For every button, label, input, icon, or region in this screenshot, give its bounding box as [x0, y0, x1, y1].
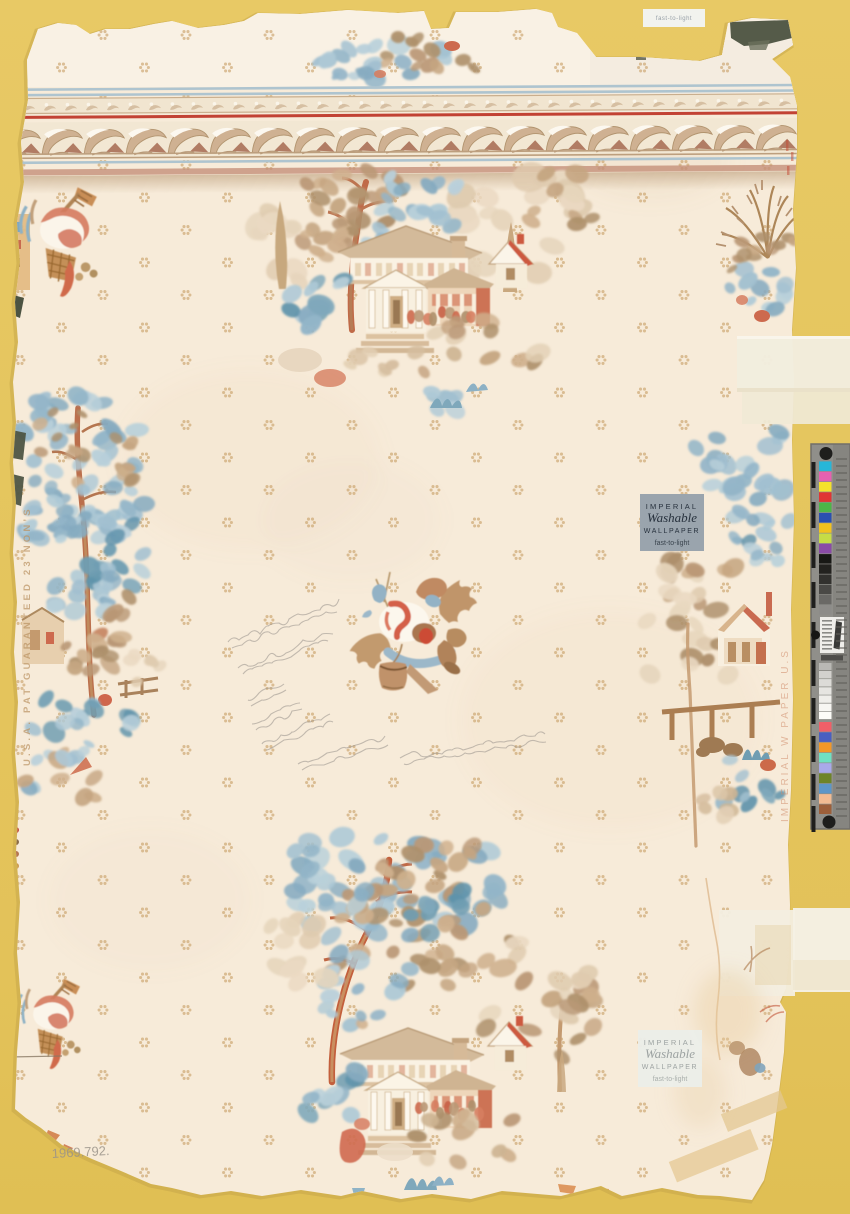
svg-text:WALLPAPER: WALLPAPER [644, 528, 700, 535]
svg-text:fast-to-light: fast-to-light [656, 16, 692, 22]
svg-text:fast-to-light: fast-to-light [653, 1076, 688, 1083]
svg-text:U.S.A. PAT GUARANTEED 23: U.S.A. PAT GUARANTEED 23 NON’S [22, 506, 33, 766]
svg-text:fast-to-light: fast-to-light [655, 540, 690, 547]
svg-text:1969.792.: 1969.792. [51, 1143, 110, 1161]
svg-text:Washable: Washable [647, 510, 697, 525]
svg-text:IMPERIAL W PAPER U.S: IMPERIAL W PAPER U.S [780, 648, 791, 822]
svg-text:Washable: Washable [645, 1046, 695, 1061]
svg-text:WALLPAPER: WALLPAPER [642, 1064, 698, 1071]
